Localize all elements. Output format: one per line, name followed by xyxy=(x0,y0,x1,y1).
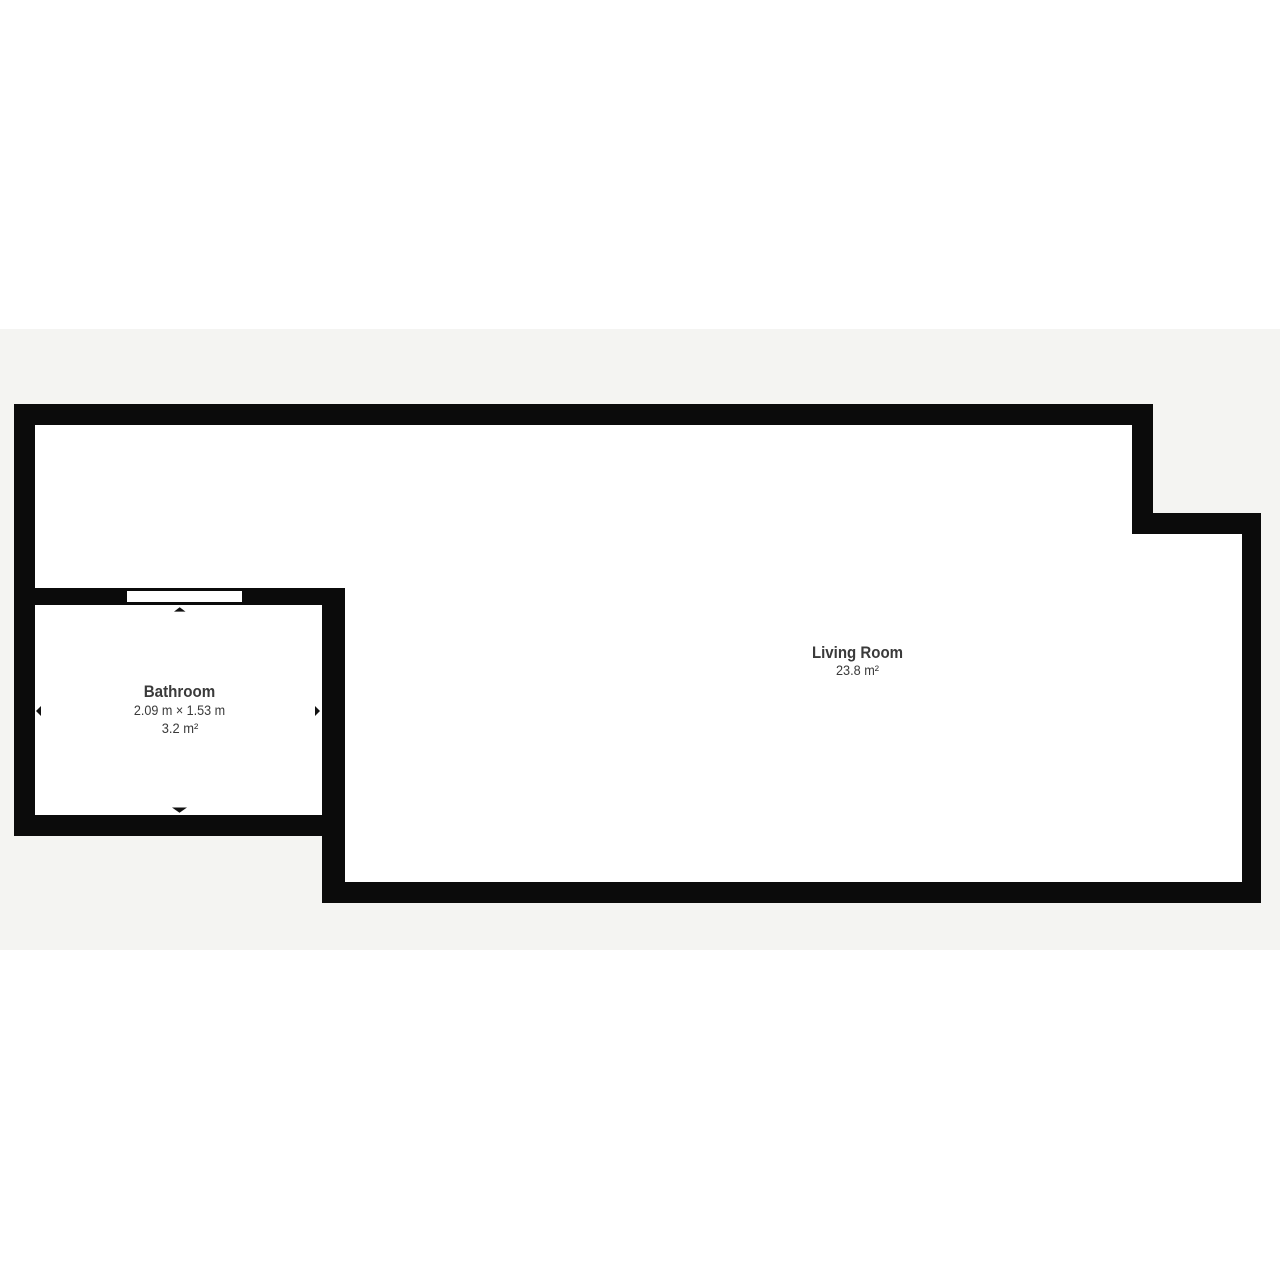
svg-text:23.8 m²: 23.8 m² xyxy=(836,663,879,678)
svg-text:Bathroom: Bathroom xyxy=(144,682,216,701)
svg-text:2.09 m × 1.53 m: 2.09 m × 1.53 m xyxy=(134,703,225,718)
svg-text:3.2 m²: 3.2 m² xyxy=(162,721,199,736)
svg-text:Living Room: Living Room xyxy=(812,643,903,662)
